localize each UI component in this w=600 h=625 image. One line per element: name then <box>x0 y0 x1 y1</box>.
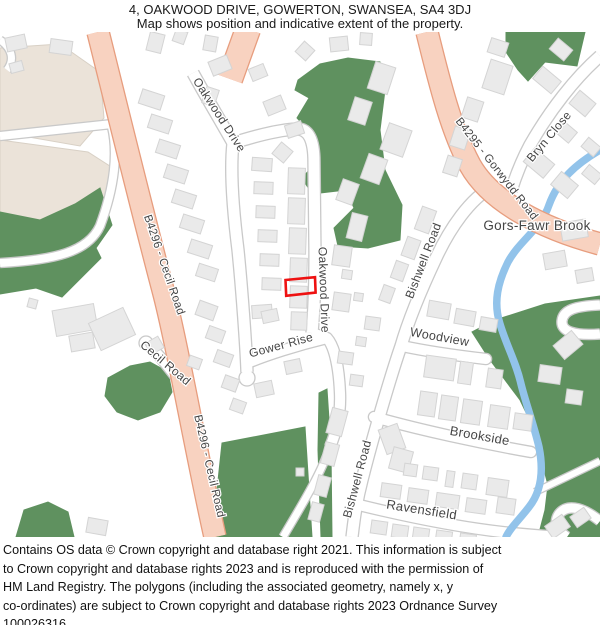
building <box>329 36 348 52</box>
building <box>332 245 353 267</box>
building <box>256 206 275 219</box>
footer-line: co-ordinates) are subject to Crown copyr… <box>0 597 600 616</box>
building <box>332 292 351 312</box>
property-map-page: 4, OAKWOOD DRIVE, GOWERTON, SWANSEA, SA4… <box>0 0 600 625</box>
building <box>454 308 476 326</box>
building <box>543 250 567 270</box>
building <box>261 308 279 323</box>
building <box>364 316 381 331</box>
building <box>360 33 373 46</box>
building <box>288 168 306 195</box>
building <box>486 368 503 389</box>
building <box>49 39 73 56</box>
footer-line: to Crown copyright and database rights 2… <box>0 560 600 579</box>
building <box>337 351 354 365</box>
building <box>412 527 430 537</box>
building <box>486 478 509 498</box>
building <box>254 182 273 195</box>
building <box>284 358 302 374</box>
street-label-oakwood-drive-lower: Oakwood Drive <box>316 247 333 333</box>
building <box>262 278 281 291</box>
building <box>479 317 498 333</box>
building <box>427 300 451 320</box>
building <box>403 463 418 477</box>
building <box>417 391 437 417</box>
building <box>496 497 516 515</box>
building <box>445 471 455 488</box>
page-title: 4, OAKWOOD DRIVE, GOWERTON, SWANSEA, SA4… <box>0 0 600 17</box>
building <box>260 254 279 267</box>
building <box>422 466 439 481</box>
building <box>465 498 487 515</box>
building <box>513 413 533 431</box>
cul-de-sac-fill <box>240 371 253 384</box>
footer-line: 100026316. <box>0 615 600 625</box>
building <box>288 198 306 225</box>
building <box>290 286 308 309</box>
building <box>258 230 277 243</box>
map-canvas: Oakwood DriveOakwood DriveGower RiseB429… <box>0 32 600 537</box>
building <box>424 355 457 381</box>
building <box>460 399 482 425</box>
building <box>254 380 275 397</box>
map-header: 4, OAKWOOD DRIVE, GOWERTON, SWANSEA, SA4… <box>0 0 600 32</box>
building <box>27 298 38 309</box>
building <box>203 35 218 52</box>
building <box>355 336 366 346</box>
building <box>291 312 308 331</box>
building <box>296 468 304 476</box>
street-label-gors-fawr-brook: Gors-Fawr Brook <box>483 218 590 233</box>
building <box>289 228 307 255</box>
building <box>341 269 352 279</box>
page-subtitle: Map shows position and indicative extent… <box>0 17 600 31</box>
building <box>370 520 388 535</box>
building <box>461 473 478 490</box>
building <box>438 395 458 421</box>
building <box>565 389 583 405</box>
building <box>488 405 511 430</box>
building <box>252 157 273 171</box>
footer-line: HM Land Registry. The polygons (includin… <box>0 578 600 597</box>
map-footer: Contains OS data © Crown copyright and d… <box>0 537 600 625</box>
building <box>86 517 108 535</box>
building <box>69 332 95 352</box>
building <box>349 374 363 387</box>
building <box>353 292 363 301</box>
building <box>575 268 594 284</box>
building <box>458 361 474 385</box>
footer-line: Contains OS data © Crown copyright and d… <box>0 541 600 560</box>
map-svg: Oakwood DriveOakwood DriveGower RiseB429… <box>0 32 600 537</box>
building <box>538 365 562 385</box>
building <box>391 524 409 537</box>
